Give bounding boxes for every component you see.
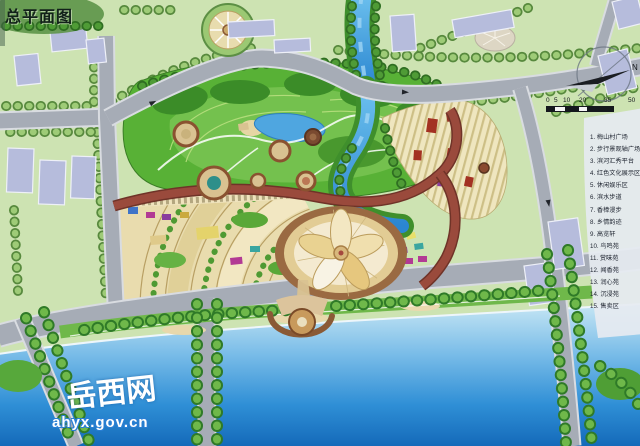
legend-item: 12. 闻香苑	[590, 265, 640, 277]
legend-panel: 1. 梅山村广场 2. 步行景观轴广场 3. 滨河汇秀平台 4. 红色文化展示区…	[588, 131, 640, 313]
scale-label: 5	[554, 97, 558, 104]
scale-label: 0	[546, 97, 550, 104]
page-title: 总平面图	[5, 3, 73, 27]
legend-item: 14. 沉浸苑	[590, 289, 640, 301]
north-label: N	[632, 63, 638, 72]
scale-label: 50	[628, 97, 635, 104]
legend-item: 15. 售卖区	[590, 301, 640, 313]
legend-item: 11. 赏味苑	[590, 253, 640, 265]
north-arrow-icon	[566, 70, 630, 86]
legend-item: 13. 润心苑	[590, 277, 640, 289]
legend-item: 3. 滨河汇秀平台	[590, 156, 640, 168]
legend-item: 7. 香樟漫步	[590, 205, 640, 217]
watermark-site-url: ahyx.gov.cn	[52, 414, 149, 431]
legend-item: 1. 梅山村广场	[590, 132, 640, 144]
scale-bar-segments	[546, 106, 614, 112]
legend-item: 6. 滨水步道	[590, 192, 640, 204]
legend-item: 8. 乡情韵迹	[590, 217, 640, 229]
legend-item: 5. 休闲娱乐区	[590, 180, 640, 192]
scale-label: 20	[579, 97, 586, 104]
scale-label: 35	[604, 97, 611, 104]
master-plan-screenshot: N 0 5 10 20 35 50 1. 梅山村广场 2. 步行景观轴广场 3.…	[0, 0, 640, 446]
legend-item: 10. 鸟鸣苑	[590, 241, 640, 253]
legend-item: 9. 高览轩	[590, 229, 640, 241]
watermark-site-name: 岳西网	[64, 363, 158, 416]
legend-item: 2. 步行景观轴广场	[590, 144, 640, 156]
legend-item: 4. 红色文化展示区	[590, 168, 640, 180]
scale-label: 10	[563, 97, 570, 104]
scale-bar: 0 5 10 20 35 50	[544, 97, 640, 115]
